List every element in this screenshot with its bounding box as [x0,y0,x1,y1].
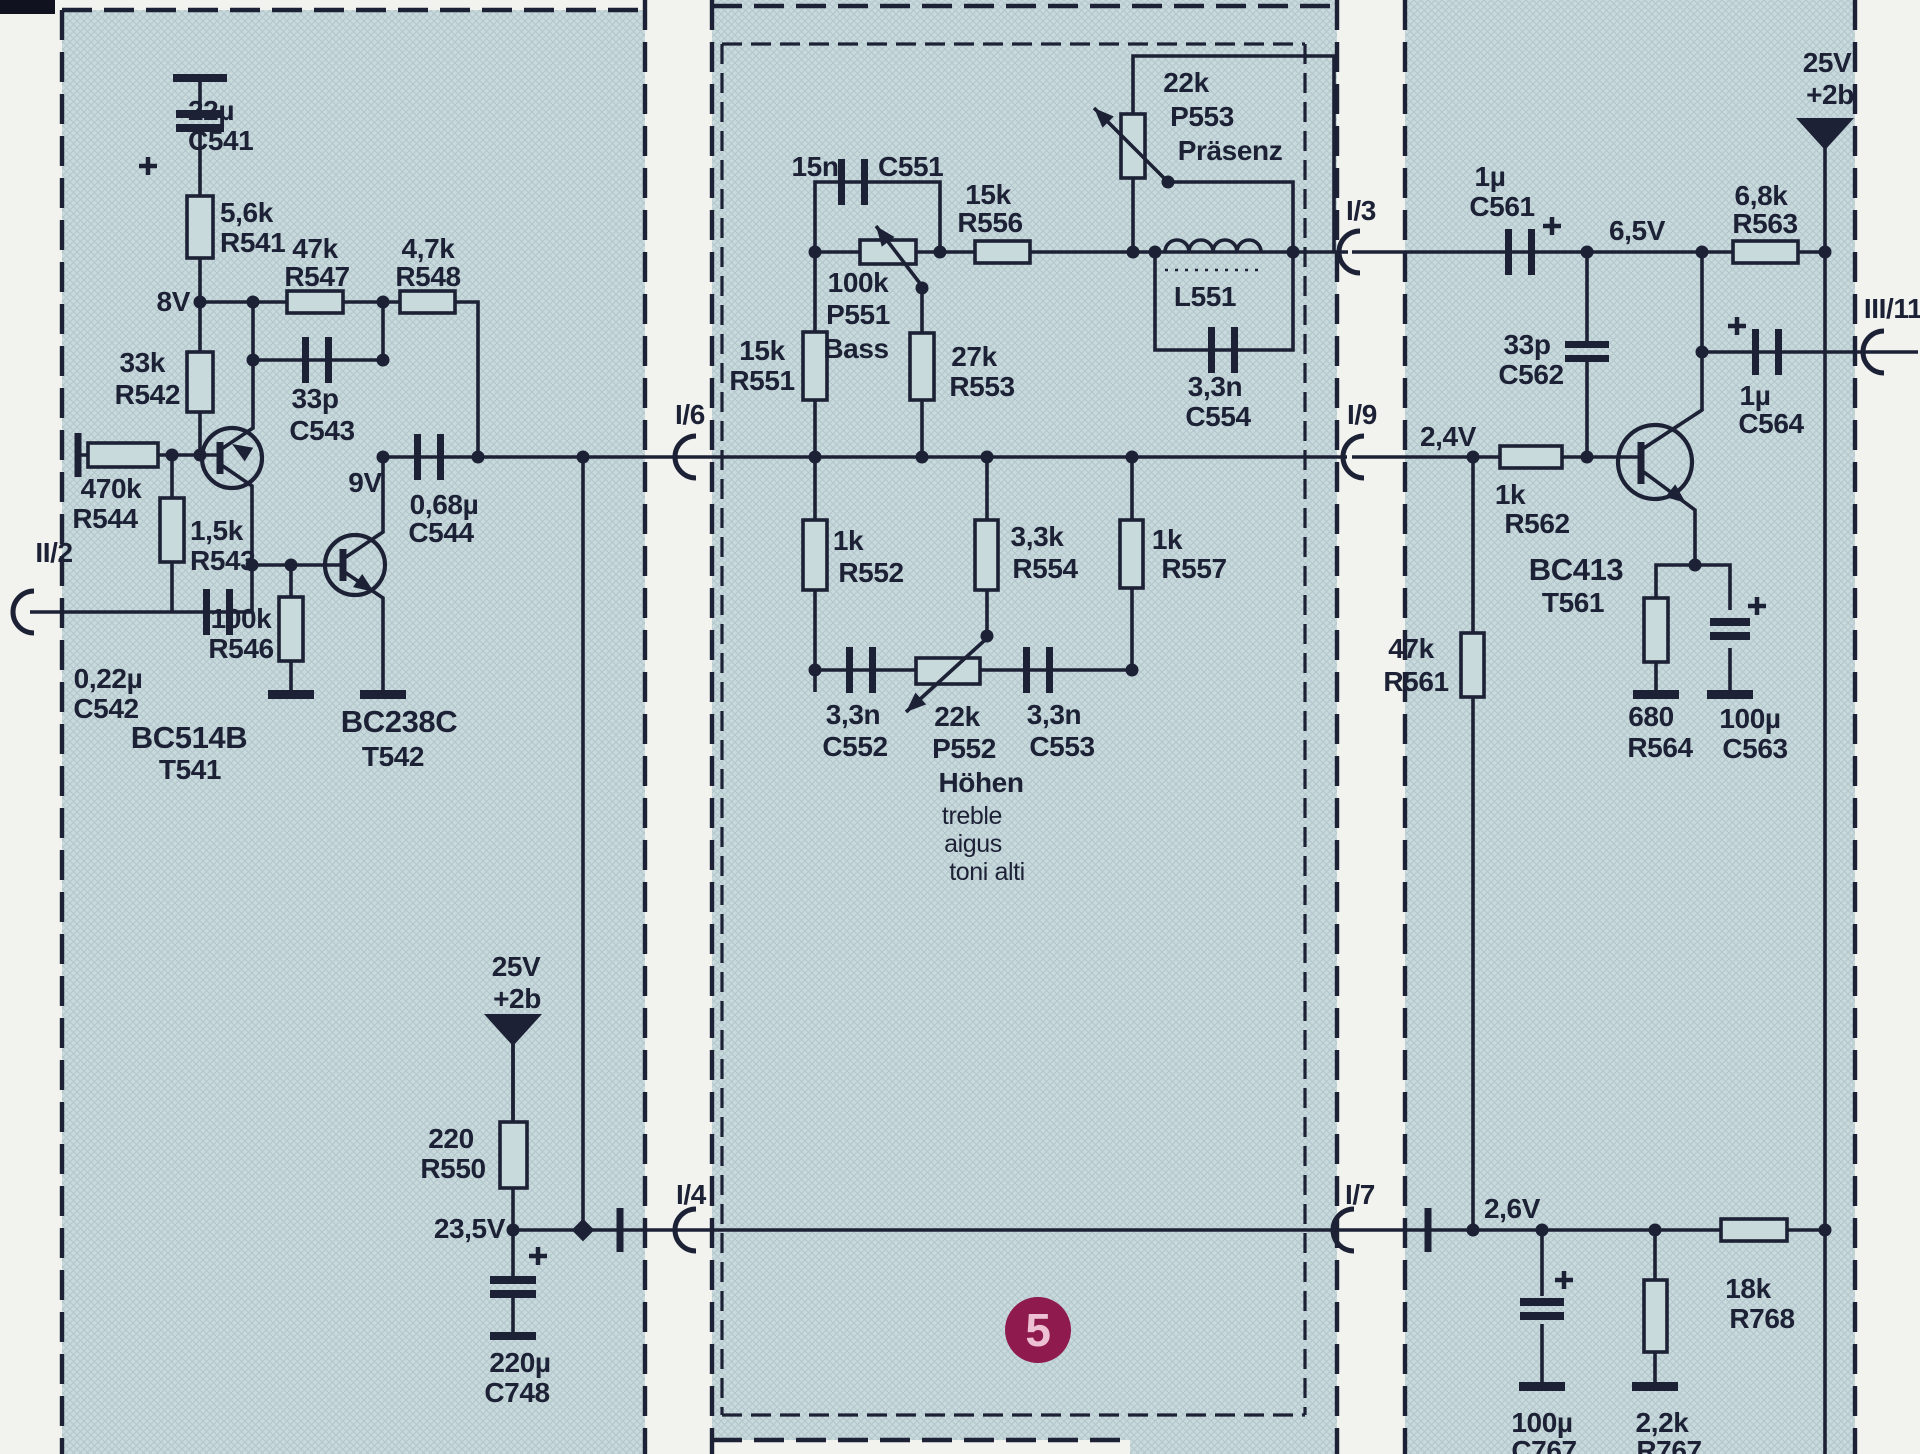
label-R541: R541 [220,227,285,258]
junction-dot [377,451,390,464]
label-R544: R544 [72,503,138,534]
schematic-page: 522µC5415,6kR5418V33kR54247kR5474,7kR548… [0,0,1920,1454]
label-R557-value: 1k [1152,524,1183,555]
ground-R767 [1632,1382,1678,1391]
junction-dot [1819,1224,1832,1237]
label-P552-function-de: Höhen [938,767,1023,798]
label-P553-value: 22k [1163,67,1209,98]
label-P551: P551 [826,299,890,330]
ground-C563 [1707,690,1753,699]
label-C564: C564 [1738,408,1804,439]
junction-dot [1696,246,1709,259]
label-T561: T561 [1542,587,1604,618]
junction-dot [1689,559,1702,572]
label-R564: R564 [1627,732,1693,763]
label-C543: C543 [289,415,354,446]
junction-dot [166,449,179,462]
resistor-R546 [279,597,303,661]
label-R544-value: 470k [81,473,143,504]
terminal-I7 [1425,1208,1432,1252]
label-C552-value: 3,3n [826,699,880,730]
capacitor-C551 [838,159,845,205]
label-voltage-24v: 2,4V [1420,421,1477,452]
capacitor-C542 [203,589,210,635]
capacitor-C544 [437,434,444,480]
junction-dot [507,1224,520,1237]
resistor-R564 [1644,598,1668,662]
capacitor-C563-p2 [1710,632,1750,640]
junction-dot [1149,246,1162,259]
junction-dot [247,354,260,367]
label-R550: R550 [420,1153,485,1184]
label-connector-I4: I/4 [676,1179,707,1210]
capacitor-C562 [1565,355,1609,362]
label-P552-function-fr: aigus [944,830,1002,858]
label-R548-value: 4,7k [402,233,456,264]
label-R554: R554 [1012,553,1078,584]
junction-dot [1162,176,1175,189]
label-R767-value: 2,2k [1636,1407,1690,1438]
capacitor-C748-p2 [490,1290,536,1298]
label-T541-type: BC514B [131,720,247,755]
capacitor-C541-terminal [173,74,227,82]
resistor-R554 [975,520,998,590]
label-connector-I6: I/6 [675,399,705,430]
label-C542: C542 [73,693,138,724]
label-T561-type: BC413 [1529,552,1624,587]
label-C552: C552 [822,731,887,762]
resistor-R541 [187,196,213,258]
label-C767-value: 100µ [1511,1407,1572,1438]
label-connector-I9: I/9 [1347,399,1377,430]
label-R548: R548 [395,261,460,292]
label-supply-right-rail: +2b [1806,79,1854,110]
label-R557: R557 [1161,553,1226,584]
label-R561-value: 47k [1388,633,1434,664]
label-C561: C561 [1469,191,1534,222]
label-C553: C553 [1029,731,1094,762]
label-P552-function-en: treble [942,802,1002,830]
terminal-input-left [75,433,82,477]
capacitor-C562 [1565,341,1609,348]
label-C554: C554 [1185,401,1251,432]
junction-dot [247,296,260,309]
junction-dot [377,296,390,309]
label-P552: P552 [932,733,996,764]
resistor-R561 [1461,633,1484,697]
label-R551-value: 15k [739,335,785,366]
label-R767: R767 [1636,1435,1701,1454]
label-R543: R543 [190,545,255,576]
capacitor-C553 [1023,647,1030,693]
label-C564-value: 1µ [1740,380,1771,411]
junction-dot [377,354,390,367]
capacitor-C552 [846,647,853,693]
label-connector-III11: III/11 [1864,293,1920,324]
capacitor-C553 [1046,647,1053,693]
junction-dot [472,451,485,464]
label-R556-value: 15k [965,179,1011,210]
label-C551: C551 [878,151,943,182]
capacitor-C551 [861,159,868,205]
label-C553-value: 3,3n [1027,699,1081,730]
ground-R546 [268,690,314,699]
label-C541-value: 22µ [188,95,234,126]
junction-dot [1467,1224,1480,1237]
junction-dot [194,296,207,309]
label-C554-value: 3,3n [1188,371,1242,402]
junction-dot [1127,246,1140,259]
resistor-R550 [500,1122,527,1188]
label-R553: R553 [949,371,1014,402]
label-C748: C748 [484,1377,549,1408]
label-R547: R547 [284,261,349,292]
junction-dot [981,630,994,643]
label-T542-type: BC238C [341,704,457,739]
label-C562: C562 [1498,359,1563,390]
label-R563: R563 [1732,208,1797,239]
label-P553: P553 [1170,101,1234,132]
label-P551-function: Bass [823,333,888,364]
resistor-R557 [1120,520,1143,588]
label-R561: R561 [1383,666,1448,697]
junction-dot [916,282,929,295]
label-R546-value: 100k [211,603,273,634]
resistor-R562 [1500,446,1562,468]
junction-dot [1287,246,1300,259]
label-R542: R542 [115,379,180,410]
label-supply-right-v: 25V [1803,47,1852,78]
capacitor-C543 [325,337,332,383]
capacitor-C561 [1505,229,1512,275]
resistor-R563 [1733,241,1798,263]
label-R552-value: 1k [833,525,864,556]
label-T542: T542 [362,741,424,772]
junction-dot [809,246,822,259]
junction-dot [577,451,590,464]
resistor-R556 [975,241,1030,263]
junction-dot [809,664,822,677]
label-R541-value: 5,6k [220,197,274,228]
label-R768-value: 18k [1725,1273,1771,1304]
junction-dot [809,451,822,464]
junction-dot [1819,246,1832,259]
label-R556: R556 [957,207,1022,238]
capacitor-C767-p1 [1520,1298,1564,1306]
junction-dot [981,451,994,464]
label-R768: R768 [1729,1303,1794,1334]
junction-dot [1581,451,1594,464]
label-R550-value: 220 [428,1123,474,1154]
capacitor-C564 [1775,329,1782,375]
label-voltage-65v: 6,5V [1609,215,1666,246]
junction-dot [1467,451,1480,464]
schematic-drawing: 522µC5415,6kR5418V33kR54247kR5474,7kR548… [0,0,1920,1454]
frame-corner-bar [0,0,55,14]
hatch-middle [712,0,1337,1454]
terminal-I4 [617,1208,624,1252]
capacitor-C561 [1528,229,1535,275]
label-C767: C767 [1511,1435,1576,1454]
capacitor-C748-p1 [490,1276,536,1284]
capacitor-C544 [414,434,421,480]
label-T541: T541 [159,754,221,785]
ground-T542 [360,690,406,699]
resistor-R552 [803,520,827,590]
resistor-R767 [1644,1280,1667,1352]
pot-P552 [916,658,980,684]
capacitor-C543 [302,337,309,383]
label-R563-value: 6,8k [1735,180,1789,211]
label-R562-value: 1k [1495,479,1526,510]
label-connector-I3: I/3 [1346,195,1376,226]
label-C551-value: 15n [791,151,838,182]
label-P552-function-it: toni alti [949,858,1025,886]
label-C543-value: 33p [291,383,338,414]
label-C561-value: 1µ [1475,161,1506,192]
junction-dot [916,451,929,464]
label-C563-value: 100µ [1719,703,1780,734]
resistor-R542 [187,352,213,412]
junction-dot [1696,346,1709,359]
junction-dot [1126,664,1139,677]
capacitor-C554 [1208,327,1215,373]
label-C562-value: 33p [1503,329,1550,360]
label-C748-value: 220µ [489,1347,550,1378]
label-voltage-8v: 8V [157,286,191,317]
label-C541: C541 [188,125,253,156]
capacitor-C767-p2 [1520,1312,1564,1320]
label-connector-I7: I/7 [1345,1179,1375,1210]
label-R542-value: 33k [119,347,165,378]
label-voltage-26v: 2,6V [1484,1193,1541,1224]
capacitor-C554 [1231,327,1238,373]
capacitor-C748-terminal [490,1332,536,1340]
resistor-R544 [88,443,158,467]
label-R551: R551 [729,365,794,396]
junction-dot [1581,246,1594,259]
capacitor-C563-p1 [1710,618,1750,626]
junction-dot [1126,451,1139,464]
label-R564-value: 680 [1628,701,1674,732]
label-supply-left-v: 25V [492,951,541,982]
label-L551: L551 [1174,281,1236,312]
capacitor-C564 [1752,329,1759,375]
ground-C767 [1519,1382,1565,1391]
junction-dot [194,449,207,462]
capacitor-C552 [869,647,876,693]
junction-dot [1649,1224,1662,1237]
label-R553-value: 27k [951,341,997,372]
label-C542-value: 0,22µ [74,663,143,694]
resistor-R543 [160,498,184,562]
junction-dot [1536,1224,1549,1237]
resistor-R547 [287,291,343,313]
label-supply-left-rail: +2b [493,983,541,1014]
ground-R564 [1633,690,1679,699]
resistor-R553 [910,333,934,400]
label-P551-value: 100k [828,267,890,298]
label-P553-function: Präsenz [1178,135,1283,166]
label-C563: C563 [1722,733,1787,764]
label-voltage-9v: 9V [348,467,382,498]
junction-dot [934,246,947,259]
label-connector-II2: II/2 [35,537,72,568]
resistor-R548 [400,291,455,313]
label-C544-value: 0,68µ [410,489,479,520]
label-R547-value: 47k [292,233,338,264]
section-badge: 5 [1025,1304,1050,1356]
label-R546: R546 [208,633,273,664]
label-voltage-235v: 23,5V [434,1213,506,1244]
junction-dot [285,559,298,572]
label-P552-value: 22k [934,701,980,732]
label-R562: R562 [1504,508,1569,539]
resistor-R768 [1721,1219,1787,1241]
label-R552: R552 [838,557,903,588]
label-R543-value: 1,5k [190,515,244,546]
label-R554-value: 3,3k [1011,521,1065,552]
label-C544: C544 [408,517,474,548]
